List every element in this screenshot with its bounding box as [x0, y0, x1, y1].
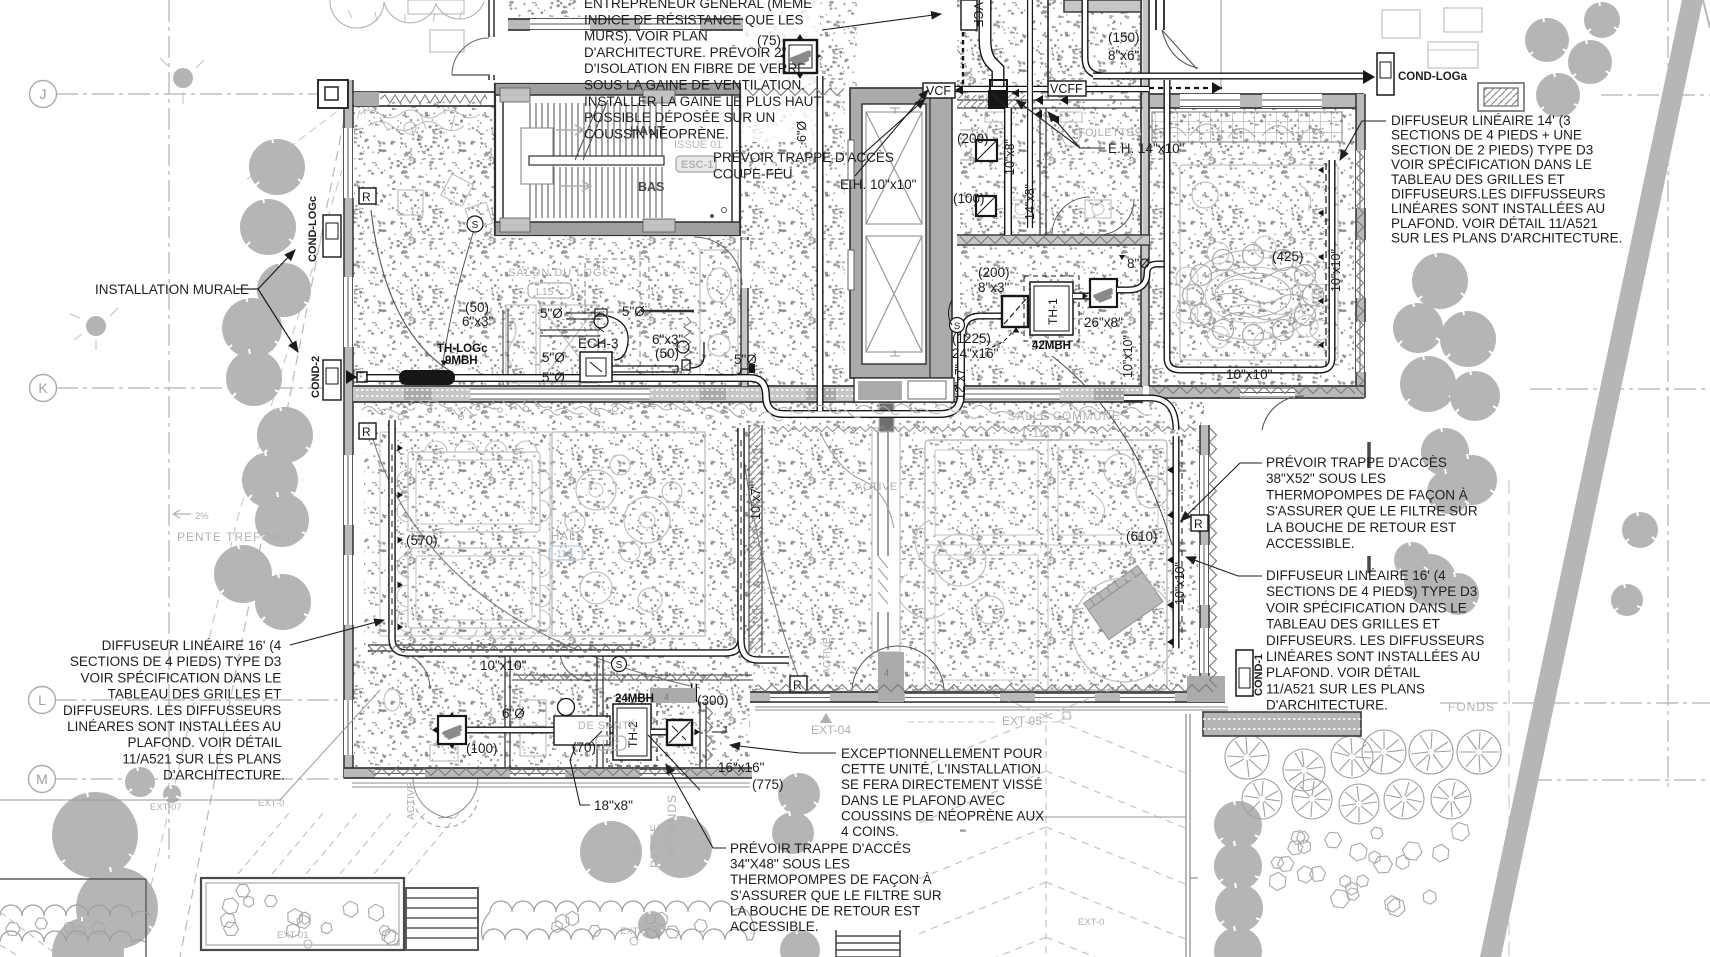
svg-text:10"x10": 10"x10"	[480, 658, 527, 673]
svg-text:S: S	[472, 220, 479, 231]
svg-text:(100): (100)	[953, 191, 985, 206]
svg-text:ACTIVE: ACTIVE	[855, 481, 898, 493]
svg-text:COND-LOGa: COND-LOGa	[1398, 71, 1468, 83]
svg-text:112: 112	[556, 548, 573, 560]
svg-text:DE SANTÉ: DE SANTÉ	[578, 719, 637, 732]
svg-text:114: 114	[1033, 428, 1050, 440]
svg-text:10"x10": 10"x10"	[1173, 562, 1187, 605]
svg-text:6"Ø: 6"Ø	[795, 121, 809, 142]
svg-text:E.H. 10"x10": E.H. 10"x10"	[840, 177, 917, 192]
svg-text:(50): (50)	[655, 346, 679, 361]
svg-text:E.H. 14"x10": E.H. 14"x10"	[1108, 141, 1185, 156]
svg-text:(70): (70)	[572, 740, 596, 755]
svg-text:(150): (150)	[1108, 30, 1140, 45]
svg-text:10"x10": 10"x10"	[1226, 367, 1273, 382]
svg-text:ACTIVE: ACTIVE	[821, 637, 833, 675]
svg-text:8"x6": 8"x6"	[1108, 48, 1140, 63]
svg-text:K: K	[38, 380, 48, 396]
svg-text:"': "'	[960, 828, 966, 840]
svg-text:5"Ø: 5"Ø	[734, 352, 757, 367]
svg-text:R: R	[1194, 517, 1203, 531]
svg-text:24"x16": 24"x16"	[952, 346, 999, 361]
svg-text:EXT-01: EXT-01	[277, 930, 309, 941]
svg-text:42MBH: 42MBH	[1032, 340, 1071, 352]
svg-text:(100): (100)	[466, 741, 498, 756]
svg-text:4: 4	[664, 692, 669, 702]
svg-text:S: S	[616, 660, 623, 671]
svg-text:(75): (75)	[757, 33, 781, 48]
svg-text:5"Ø: 5"Ø	[540, 306, 563, 321]
svg-text:VCFF: VCFF	[1050, 82, 1083, 96]
svg-text:(570): (570)	[406, 533, 438, 548]
svg-text:PENTE TREFONDS: PENTE TREFONDS	[177, 530, 300, 544]
svg-text:L: L	[38, 692, 46, 708]
svg-text:(200): (200)	[957, 131, 989, 146]
svg-text:TRÉFONDS: TRÉFONDS	[664, 794, 679, 868]
svg-text:12"x7": 12"x7"	[953, 364, 967, 400]
svg-text:COND-LOGc: COND-LOGc	[307, 196, 319, 262]
svg-text:L17: L17	[602, 738, 620, 750]
svg-text:10"x10": 10"x10"	[1329, 249, 1343, 292]
svg-text:16"x16": 16"x16"	[718, 760, 765, 775]
svg-text:HALL: HALL	[551, 531, 584, 543]
svg-text:9MBH: 9MBH	[445, 355, 478, 367]
svg-text:R: R	[362, 190, 371, 204]
svg-text:2%: 2%	[195, 511, 209, 522]
svg-text:(300): (300)	[697, 693, 729, 708]
svg-text:EXT-05: EXT-05	[1002, 714, 1042, 728]
svg-text:BAS: BAS	[638, 180, 664, 194]
svg-text:(50): (50)	[465, 300, 489, 315]
svg-text:ACTIVE: ACTIVE	[405, 782, 417, 820]
svg-text:(200): (200)	[978, 265, 1010, 280]
svg-text:4: 4	[884, 668, 889, 678]
svg-text:18"x8": 18"x8"	[594, 798, 633, 813]
svg-text:14"x8": 14"x8"	[1023, 184, 1037, 220]
svg-text:TOILETTES: TOILETTES	[1078, 127, 1142, 139]
svg-text:TH-1: TH-1	[1046, 298, 1060, 325]
svg-text:INSTALLATION MURALE: INSTALLATION MURALE	[95, 282, 249, 297]
svg-text:EXT-0: EXT-0	[1078, 917, 1104, 928]
svg-text:8"x3": 8"x3"	[978, 280, 1010, 295]
svg-text:6"Ø: 6"Ø	[502, 706, 525, 721]
svg-text:R: R	[362, 425, 371, 439]
svg-text:5"Ø: 5"Ø	[622, 304, 645, 319]
svg-text:5"Ø: 5"Ø	[542, 370, 565, 385]
svg-text:(1225): (1225)	[952, 331, 991, 346]
svg-text:6"x3": 6"x3"	[652, 332, 684, 347]
svg-text:SALLE COMMUNE: SALLE COMMUNE	[1008, 411, 1121, 423]
svg-text:10"x10": 10"x10"	[1121, 335, 1135, 378]
svg-text:2%: 2%	[632, 841, 643, 855]
svg-text:EXT-02: EXT-02	[620, 926, 652, 937]
svg-text:24MBH: 24MBH	[615, 693, 654, 705]
svg-text:(775): (775)	[752, 777, 784, 792]
svg-text:8"Ø: 8"Ø	[1127, 256, 1150, 271]
svg-text:EXT-07: EXT-07	[150, 802, 182, 813]
svg-text:26"x8": 26"x8"	[1084, 315, 1123, 330]
svg-text:SALON DU LOGc: SALON DU LOGc	[508, 267, 609, 279]
svg-text:ECH-3: ECH-3	[578, 336, 619, 351]
svg-text:5"Ø: 5"Ø	[542, 350, 565, 365]
svg-text:TH-LOGc: TH-LOGc	[437, 343, 488, 355]
svg-text:COND-2: COND-2	[310, 356, 322, 398]
svg-text:6"x3": 6"x3"	[462, 314, 494, 329]
svg-text:VCF: VCF	[926, 84, 951, 98]
svg-text:M: M	[36, 771, 48, 787]
svg-text:FONDS: FONDS	[1448, 700, 1495, 714]
svg-text:(425): (425)	[1272, 249, 1304, 264]
svg-text:10"x8": 10"x8"	[1003, 139, 1017, 175]
svg-text:(610): (610)	[1126, 529, 1158, 544]
svg-text:VCF: VCF	[971, 2, 985, 27]
svg-text:10"x7": 10"x7"	[749, 484, 763, 520]
svg-text:EXT-0: EXT-0	[258, 798, 284, 809]
svg-text:J: J	[40, 86, 47, 102]
svg-text:COND-1: COND-1	[1253, 654, 1265, 696]
svg-text:EXT-04: EXT-04	[811, 723, 851, 737]
svg-text:L15: L15	[536, 286, 554, 298]
svg-text:ESC-1: ESC-1	[681, 159, 713, 171]
svg-text:PENTE: PENTE	[648, 823, 662, 868]
